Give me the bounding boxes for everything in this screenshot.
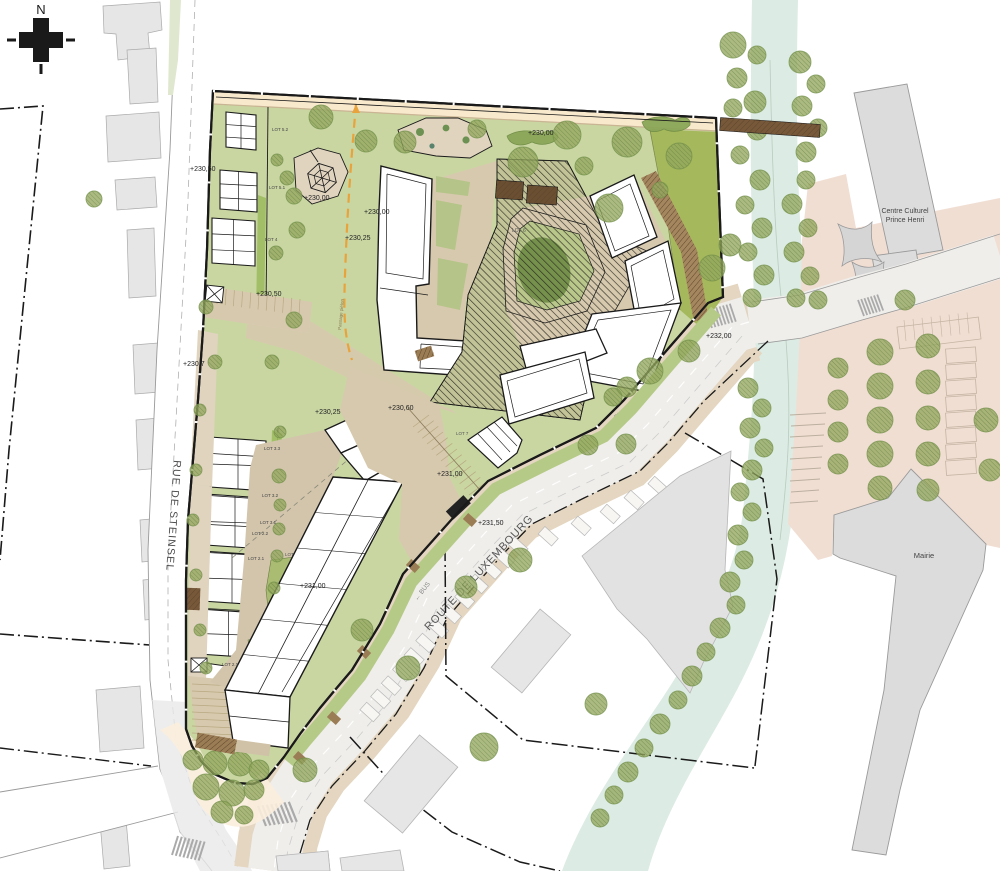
svg-text:+230,25: +230,25 xyxy=(315,409,341,416)
svg-text:+231,50: +231,50 xyxy=(478,520,504,527)
svg-text:+230,00: +230,00 xyxy=(528,130,554,137)
svg-text:N: N xyxy=(36,2,45,17)
svg-text:+232,00: +232,00 xyxy=(706,333,732,340)
svg-text:Prince Henri: Prince Henri xyxy=(886,217,925,224)
svg-text:LOT 7: LOT 7 xyxy=(456,431,469,436)
svg-text:+230,00: +230,00 xyxy=(304,195,330,202)
svg-text:+230,00: +230,00 xyxy=(364,209,390,216)
svg-text:+231,00: +231,00 xyxy=(300,583,326,590)
svg-text:LOT 2.1: LOT 2.1 xyxy=(222,662,239,667)
svg-text:LOT 3.1: LOT 3.1 xyxy=(260,520,277,525)
svg-text:+231,00: +231,00 xyxy=(437,471,463,478)
svg-text:+230,7: +230,7 xyxy=(183,361,205,368)
svg-text:LOT 5.2: LOT 5.2 xyxy=(272,127,289,132)
svg-text:+230,50: +230,50 xyxy=(190,166,216,173)
svg-text:LOT 3.3: LOT 3.3 xyxy=(264,446,281,451)
svg-text:+230,50: +230,50 xyxy=(256,291,282,298)
svg-text:LOT 2.1: LOT 2.1 xyxy=(248,556,265,561)
svg-text:LOT 3.2: LOT 3.2 xyxy=(262,493,279,498)
svg-text:LOT 2.2: LOT 2.2 xyxy=(252,531,269,536)
svg-text:Centre Culturel: Centre Culturel xyxy=(881,208,929,215)
svg-text:LOT 6: LOT 6 xyxy=(512,228,526,234)
svg-text:Mairie: Mairie xyxy=(914,551,934,560)
svg-text:+230,60: +230,60 xyxy=(388,405,414,412)
svg-text:LOT 4: LOT 4 xyxy=(265,237,278,242)
svg-text:LOT 5.1: LOT 5.1 xyxy=(269,185,286,190)
svg-text:+230,25: +230,25 xyxy=(345,235,371,242)
